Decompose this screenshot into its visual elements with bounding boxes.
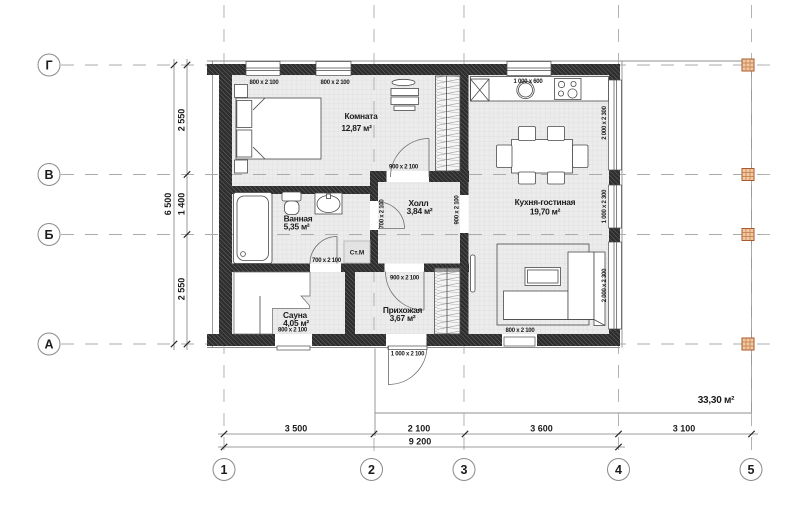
svg-text:Б: Б: [45, 228, 54, 242]
svg-text:19,70 м²: 19,70 м²: [530, 207, 561, 217]
svg-text:1 400: 1 400: [177, 193, 187, 216]
svg-text:800 х 2 100: 800 х 2 100: [321, 80, 351, 86]
svg-text:Кухня-гостиная: Кухня-гостиная: [515, 197, 576, 207]
svg-text:5,35 м²: 5,35 м²: [284, 222, 310, 232]
svg-text:2 550: 2 550: [177, 109, 187, 132]
svg-text:6 500: 6 500: [163, 193, 173, 216]
svg-text:2: 2: [368, 463, 375, 477]
svg-text:1 000 х 2 100: 1 000 х 2 100: [391, 352, 425, 358]
svg-text:3 600: 3 600: [530, 424, 553, 434]
svg-text:3,84 м²: 3,84 м²: [407, 206, 433, 216]
svg-text:1: 1: [221, 463, 228, 477]
svg-text:800 х 2 100: 800 х 2 100: [278, 328, 308, 334]
svg-text:Г: Г: [45, 59, 52, 73]
svg-text:Комната: Комната: [344, 111, 378, 121]
svg-text:А: А: [44, 338, 53, 352]
svg-text:900 х 2 100: 900 х 2 100: [455, 195, 461, 225]
svg-text:В: В: [44, 168, 53, 182]
svg-text:2 100: 2 100: [408, 424, 431, 434]
svg-text:1 000 х 2 300: 1 000 х 2 300: [602, 189, 608, 223]
svg-text:700 х 2 100: 700 х 2 100: [312, 258, 342, 264]
svg-text:700 х 2 100: 700 х 2 100: [380, 199, 386, 229]
svg-text:9 200: 9 200: [409, 437, 432, 447]
svg-text:3: 3: [461, 463, 468, 477]
svg-text:900 х 2 100: 900 х 2 100: [389, 165, 419, 171]
svg-text:900 х 2 100: 900 х 2 100: [390, 276, 420, 282]
svg-text:3 500: 3 500: [285, 424, 308, 434]
svg-text:Ст.М: Ст.М: [350, 250, 365, 257]
svg-text:5: 5: [748, 463, 755, 477]
svg-text:4: 4: [615, 463, 622, 477]
svg-text:4,05 м²: 4,05 м²: [283, 318, 309, 328]
svg-text:800 х 2 100: 800 х 2 100: [506, 328, 536, 334]
svg-text:33,30 м²: 33,30 м²: [698, 395, 735, 406]
svg-text:2 000 х 2 300: 2 000 х 2 300: [602, 268, 608, 302]
svg-text:3 100: 3 100: [673, 424, 696, 434]
svg-text:2 000 х 2 300: 2 000 х 2 300: [602, 105, 608, 139]
svg-text:800 х 2 100: 800 х 2 100: [250, 80, 280, 86]
svg-text:1 000 х 600: 1 000 х 600: [514, 79, 544, 85]
svg-text:3,67 м²: 3,67 м²: [390, 313, 416, 323]
svg-text:2 550: 2 550: [177, 278, 187, 301]
svg-text:12,87 м²: 12,87 м²: [341, 123, 372, 133]
